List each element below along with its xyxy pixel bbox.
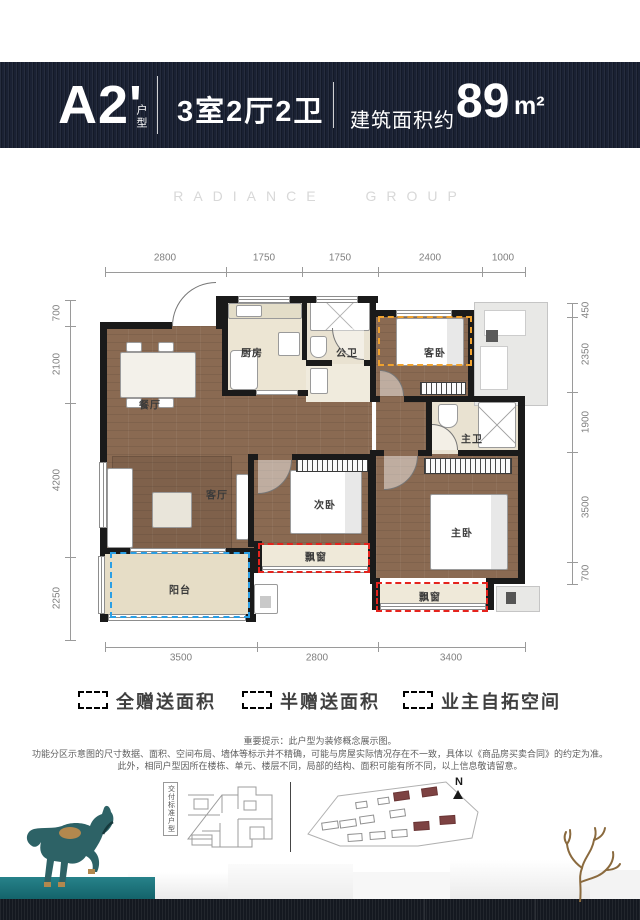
dimension-label: 3500 xyxy=(581,496,592,518)
sofa xyxy=(107,468,133,548)
wall xyxy=(518,396,525,584)
wall xyxy=(292,454,374,460)
wall xyxy=(370,296,376,402)
dimension-tick xyxy=(65,403,76,404)
room-label-dining: 餐厅 xyxy=(139,397,161,412)
footer-dark-strip xyxy=(0,899,640,920)
dimension-label: 700 xyxy=(52,305,63,322)
dimension-label: 700 xyxy=(581,565,592,582)
dimension-tick xyxy=(525,267,526,277)
dining-chair xyxy=(158,342,174,352)
legend-label-half-gift: 半赠送面积 xyxy=(280,688,380,714)
window xyxy=(316,296,358,303)
room-label-bay-window-2: 飘窗 xyxy=(419,589,441,604)
room-label-balcony: 阳台 xyxy=(169,582,191,597)
room-label-second-bedroom: 次卧 xyxy=(314,497,336,512)
dimension-tick xyxy=(105,642,106,652)
dimension-label: 2800 xyxy=(154,253,176,264)
disclaimer: 重要提示：此户型为装修概念展示图。 功能分区示意图的尺寸数据、面积、空间布局、墙… xyxy=(0,735,640,773)
dimension-line xyxy=(105,272,525,273)
dimension-label: 2250 xyxy=(52,587,63,609)
floor-plan: 餐厅 厨房 公卫 客卧 主卫 客厅 次卧 主卧 阳台 飘窗 飘窗 2800 17… xyxy=(0,0,640,700)
room-label-master-bedroom: 主卧 xyxy=(451,525,473,540)
dimension-label: 2400 xyxy=(419,253,441,264)
dimension-label: 1000 xyxy=(492,253,514,264)
dimension-label: 2800 xyxy=(306,653,328,664)
strip-seam xyxy=(535,899,536,920)
dimension-tick xyxy=(378,642,379,652)
standard-type-badge: 交付标准户型 xyxy=(163,782,178,836)
window xyxy=(238,296,290,303)
dimension-label: 3500 xyxy=(170,653,192,664)
entry-door-arc xyxy=(172,282,216,326)
vestibule-cabinet xyxy=(310,368,328,394)
dimension-label: 4200 xyxy=(52,469,63,491)
washer-door xyxy=(260,596,271,608)
wall xyxy=(302,296,307,360)
legend: 全赠送面积 半赠送面积 业主自拓空间 xyxy=(0,680,640,720)
dimension-label: 1900 xyxy=(581,411,592,433)
window xyxy=(98,556,105,614)
wall xyxy=(216,296,222,324)
dining-chair xyxy=(126,342,142,352)
dimension-label: 1750 xyxy=(329,253,351,264)
tree-branch xyxy=(540,824,622,902)
dimension-tick xyxy=(65,300,76,301)
compass-north-icon xyxy=(453,790,463,799)
dimension-tick xyxy=(567,452,578,453)
coffee-table xyxy=(152,492,192,528)
dimension-label: 2100 xyxy=(52,353,63,375)
legend-label-full-gift: 全赠送面积 xyxy=(116,688,216,714)
window xyxy=(99,462,107,528)
dimension-tick xyxy=(302,267,303,277)
room-label-guest-bedroom: 客卧 xyxy=(424,345,446,360)
shower xyxy=(478,402,516,448)
wall xyxy=(248,454,254,547)
dimension-tick xyxy=(567,303,578,304)
dimension-tick xyxy=(65,326,76,327)
dimension-tick xyxy=(65,557,76,558)
legend-swatch-owner-expand xyxy=(403,691,433,709)
toilet-master xyxy=(438,404,458,428)
room-label-bay-window-1: 飘窗 xyxy=(305,549,327,564)
wall xyxy=(100,528,107,554)
dimension-tick xyxy=(567,317,578,318)
site-plan xyxy=(298,776,494,860)
room-label-guest-bath: 公卫 xyxy=(336,345,358,360)
dimension-label: 3400 xyxy=(440,653,462,664)
wardrobe-master xyxy=(424,458,512,474)
disclaimer-line: 重要提示：此户型为装修概念展示图。 xyxy=(0,735,640,748)
wall xyxy=(100,322,107,462)
disclaimer-line: 功能分区示意图的尺寸数据、面积、空间布局、墙体等标示并不精确，可能与房屋实际情况… xyxy=(0,748,640,761)
dimension-label: 2350 xyxy=(581,343,592,365)
legend-swatch-full-gift xyxy=(78,691,108,709)
strip-seam xyxy=(424,899,425,920)
mini-floorplan xyxy=(180,779,282,855)
step-block xyxy=(353,872,450,902)
dimension-tick xyxy=(105,267,106,277)
corner-equipment-box xyxy=(496,586,540,612)
disclaimer-line: 此外，相同户型因所在楼栋、单元、楼层不同，局部的结构、面积可能有所不同，以上信息… xyxy=(0,760,640,773)
wall xyxy=(458,450,524,456)
step-block xyxy=(228,864,353,902)
dimension-line xyxy=(572,303,573,584)
wall xyxy=(306,360,332,366)
dimension-tick xyxy=(226,267,227,277)
wall xyxy=(100,322,172,329)
floorplan-page: A2' 户型 3室2厅2卫 建筑面积约 89 m² RADIANCE GROUP xyxy=(0,0,640,920)
legend-swatch-half-gift xyxy=(242,691,272,709)
ac-unit xyxy=(486,330,498,342)
wardrobe-second xyxy=(296,458,368,472)
wall xyxy=(404,396,524,402)
room-label-master-bath: 主卫 xyxy=(461,431,483,446)
platform-box-2 xyxy=(480,346,508,390)
dimension-tick xyxy=(65,640,76,641)
legend-label-owner-expand: 业主自拓空间 xyxy=(441,688,561,714)
wall xyxy=(298,390,308,396)
standard-type-label: 交付标准户型 xyxy=(166,785,176,833)
dimension-tick xyxy=(482,267,483,277)
compass-north-label: N xyxy=(455,776,463,788)
equipment-mark xyxy=(506,592,516,604)
dimension-label: 450 xyxy=(581,302,592,319)
footer-divider xyxy=(290,782,291,852)
wardrobe-guest xyxy=(420,382,466,395)
horse-sculpture xyxy=(22,793,134,893)
wall xyxy=(222,296,228,396)
stove xyxy=(278,332,300,356)
toilet-guest xyxy=(310,336,327,358)
sliding-door xyxy=(256,390,298,395)
room-label-kitchen: 厨房 xyxy=(241,345,263,360)
bathtub xyxy=(310,301,370,331)
dimension-label: 1750 xyxy=(253,253,275,264)
dining-table xyxy=(120,352,196,398)
dimension-tick xyxy=(567,584,578,585)
dimension-line xyxy=(70,300,71,640)
dimension-tick xyxy=(567,562,578,563)
wall xyxy=(100,614,108,622)
kitchen-sink xyxy=(236,305,262,317)
dimension-tick xyxy=(525,642,526,652)
dimension-tick xyxy=(257,642,258,652)
dimension-tick xyxy=(378,267,379,277)
room-label-living: 客厅 xyxy=(206,487,228,502)
dimension-tick xyxy=(567,392,578,393)
dimension-line xyxy=(105,647,525,648)
